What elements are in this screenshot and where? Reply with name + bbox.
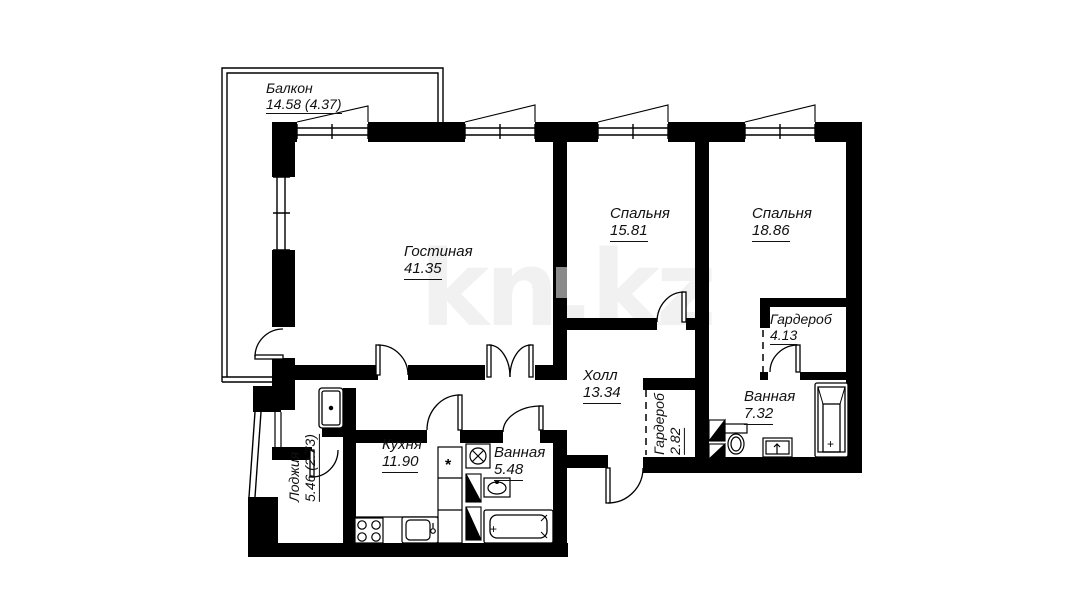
room-label-bathroom-2: Ванная 5.48 bbox=[494, 444, 545, 481]
toilet bbox=[725, 424, 747, 454]
room-label-hall: Холл 13.34 bbox=[583, 367, 621, 404]
window-bedroom-2 bbox=[745, 105, 815, 139]
washing-machine bbox=[466, 444, 490, 468]
bathtub-1-plus-mark: + bbox=[827, 437, 834, 451]
room-label-living-room: Гостиная 41.35 bbox=[404, 243, 473, 280]
room-label-loggia: Лоджия 5.46 (2.73) bbox=[286, 434, 320, 502]
room-label-bedroom-1: Спальня 15.81 bbox=[610, 205, 670, 242]
window-loggia-inner bbox=[275, 412, 281, 447]
loggia-glazing bbox=[249, 412, 261, 497]
kitchen-door bbox=[427, 395, 462, 430]
living-room-double-door bbox=[487, 345, 533, 377]
water-heater bbox=[319, 388, 343, 428]
room-label-bedroom-2: Спальня 18.86 bbox=[752, 205, 812, 242]
bathroom-2-door bbox=[503, 406, 543, 432]
entrance-door bbox=[606, 468, 643, 503]
living-room-door bbox=[376, 345, 408, 375]
bathroom-1-sink bbox=[763, 438, 792, 457]
room-label-wardrobe-1: Гардероб 4.13 bbox=[770, 311, 832, 345]
floor-plan-drawing: * bbox=[0, 0, 1085, 610]
kitchen-star-symbol: * bbox=[445, 457, 452, 474]
window-bedroom-1 bbox=[598, 105, 668, 139]
ventilation-shaft-gray bbox=[556, 267, 567, 298]
bathroom-2-sink bbox=[484, 478, 510, 497]
balcony-door bbox=[255, 329, 283, 359]
bathtub-2-plus-mark: + bbox=[490, 522, 497, 536]
stove bbox=[355, 518, 383, 543]
room-label-wardrobe-2: Гардероб 2.82 bbox=[651, 393, 685, 455]
window-living-left bbox=[273, 177, 290, 250]
room-label-balcony: Балкон 14.58 (4.37) bbox=[266, 80, 342, 114]
kitchen-sink bbox=[402, 517, 438, 543]
balcony-glazing bbox=[222, 68, 443, 382]
vent-shaft-kitchen bbox=[466, 474, 481, 540]
window-living-top bbox=[465, 105, 535, 139]
room-label-bathroom-1: Ванная 7.32 bbox=[744, 388, 795, 425]
floor-plan: kn.kz bbox=[0, 0, 1085, 610]
bathroom-1-door bbox=[770, 345, 800, 372]
bedroom-1-door bbox=[657, 292, 686, 322]
vent-shaft-bathroom-1 bbox=[709, 420, 725, 459]
room-label-kitchen: Кухня 11.90 bbox=[382, 436, 422, 473]
